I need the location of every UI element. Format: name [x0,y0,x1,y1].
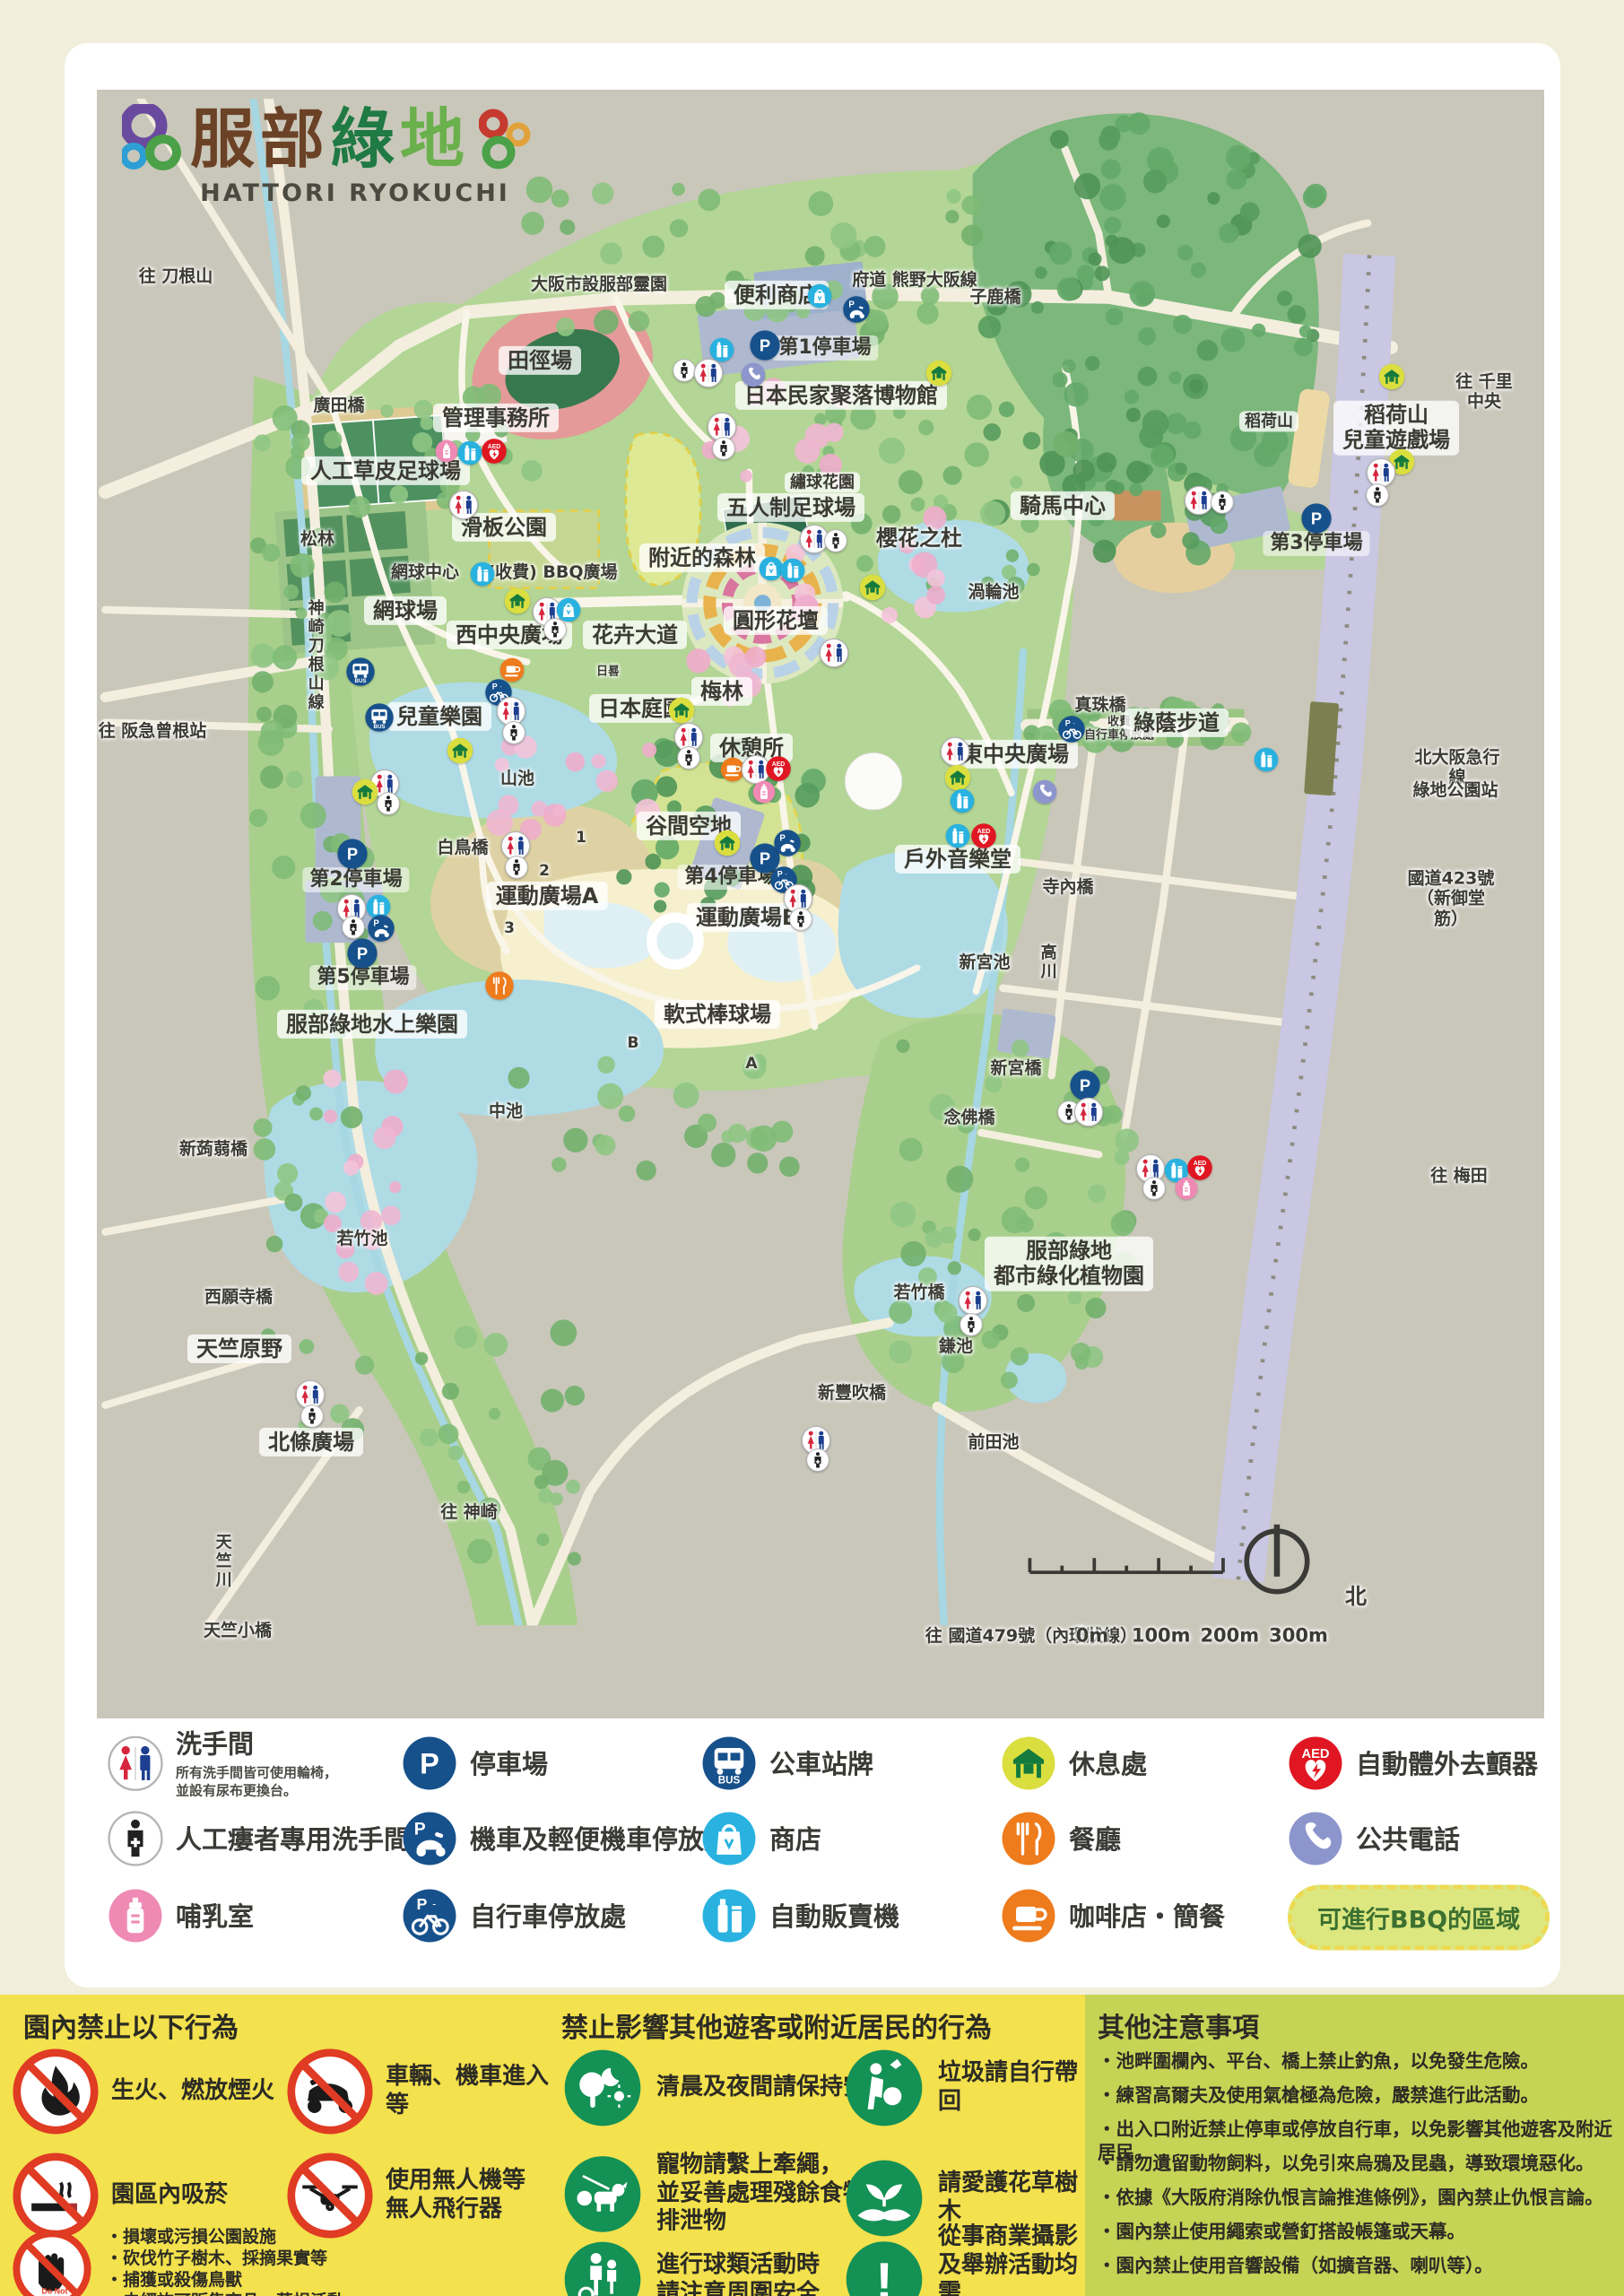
legend-note: 所有洗手間皆可使用輪椅， 並設有尿布更換台。 [176,1763,391,1800]
etiquette-item-quiet: 清晨及夜間請保持安靜 [561,2047,890,2129]
svg-text:P: P [420,1748,439,1780]
legend-item-restaurant: 餐廳 [1001,1811,1121,1870]
other-notice-bullet: ・園內禁止使用繩索或營釘搭設帳篷或天幕。 [1098,2221,1616,2244]
svg-text:P: P [414,1819,426,1839]
legend-item-cafe: 咖啡店・簡餐 [1001,1888,1225,1947]
aed-icon: AED [1288,1735,1343,1795]
other-notice-bullet: ・池畔圍欄內、平台、橋上禁止釣魚，以免發生危險。 [1098,2050,1616,2074]
legend-label: 休息處 [1069,1751,1147,1779]
accessible-icon [502,721,525,744]
other-notice-bullet: ・練習高爾夫及使用氣槍極為危險，嚴禁進行此活動。 [1098,2084,1616,2108]
map-card: 往 刀根山大阪市設服部靈園府道 熊野大阪線子鹿橋便利商店第1停車場日本民家聚落博… [65,43,1560,1987]
legend-item-bbq: 可進行BBQ的區域 [1288,1885,1550,1951]
accessible-icon [960,1313,983,1336]
prohibited-item-no-fire: 生火、燃放煙火 [13,2048,274,2135]
rest-icon [714,830,741,857]
notice-column-other: 其他注意事項 ・池畔圍欄內、平台、橋上禁止釣魚，以免發生危險。・練習高爾夫及使用… [1085,1995,1624,2296]
no-fire-icon [13,2048,99,2135]
legend-item-shop: 商店 [701,1811,821,1870]
do-not-hand-icon: Do Not [13,2230,91,2296]
legend-label: 自動販賣機 [769,1903,899,1932]
svg-text:P: P [357,944,368,963]
prohibited-label: 使用無人機等 無人飛行器 [386,2167,525,2223]
toilet-icon [1185,486,1214,516]
toilet-icon [1074,1098,1104,1127]
accessible-icon [673,359,696,382]
legend-label: 洗手間 [176,1730,391,1759]
svg-text:P: P [760,336,770,355]
svg-text:P: P [1065,719,1071,728]
prohibited-item-no-vehicle: 車輛、機車進入等 [287,2048,554,2135]
ball-icon [561,2239,644,2296]
bbq-area-badge: 可進行BBQ的區域 [1288,1885,1550,1951]
nursing-icon [752,780,776,804]
shop-icon [701,1811,757,1870]
legend-label: 公共電話 [1356,1826,1460,1855]
etiquette-item-pet: 寵物請繫上牽繩， 並妥善處理殘餘食物、 排泄物 [561,2151,890,2236]
nursing-icon [1175,1177,1198,1200]
pet-icon [561,2152,644,2235]
rest-icon [352,778,378,805]
etiquette-item-ball: 進行球類活動時 請注意周圍安全 [561,2239,820,2296]
legend-label: 哺乳室 [176,1903,254,1932]
phone-icon [741,362,766,387]
accessible-icon [505,856,528,879]
svg-text:P: P [492,683,498,691]
legend-item-motoP: P機車及輕便機車停放處 [402,1811,730,1870]
aed-icon: AED [482,439,508,465]
legend-item-aed: AED自動體外去顫器 [1288,1735,1538,1795]
etiquette-label: 從事商業攝影 及舉辦活動均需 獲得許可 [938,2223,1085,2296]
bikeP-icon: P- [1058,716,1086,744]
svg-text:P: P [760,849,770,868]
svg-text:AED: AED [488,444,501,450]
svg-text:AED: AED [977,829,991,835]
no-vehicle-icon [287,2048,373,2135]
legend-label: 商店 [769,1826,821,1855]
P-icon: P [1070,1070,1101,1101]
prohibited-hand-item: ・損壞或污損公園設施 [106,2226,542,2248]
legend-item-toilet: 洗手間所有洗手間皆可使用輪椅， 並設有尿布更換台。 [108,1730,391,1799]
prohibited-label: 園區內吸菸 [111,2181,228,2210]
logo-dots-left-icon [122,104,181,174]
svg-text:P: P [417,1895,428,1913]
toilet-icon [449,491,479,520]
notice-column-consideration: 禁止影響其他遊客或附近居民的行為 清晨及夜間請保持安靜垃圾請自行帶回寵物請繫上牽… [554,1995,1085,2296]
park-title-block: 服部綠地 HATTORI RYOKUCHI [122,104,588,207]
svg-text:AED: AED [1301,1747,1329,1761]
etiquette-label: 請愛護花草樹木 [938,2170,1085,2226]
svg-text:P: P [1311,509,1322,528]
toilet-icon [694,359,724,388]
bus-icon: BUS [701,1735,757,1795]
rest-icon [1378,363,1405,390]
etiquette-label: 垃圾請自行帶回 [938,2059,1085,2116]
rest-icon [859,574,886,601]
accessible-icon [377,792,400,815]
other-notice-bullet: ・依據《大阪府消除仇恨言論推進條例》，園內禁止仇恨言論。 [1098,2187,1616,2210]
P-icon: P [402,1735,457,1795]
park-title: 服部綠地 [190,107,470,171]
prohibited-hand-item: ・未經許可販售商品、募捐活動 [106,2291,542,2296]
bikeP-icon: P- [402,1888,457,1947]
nursing-icon [435,439,458,463]
prohibited-label: 生火、燃放煙火 [111,2077,274,2106]
accessible-icon [1366,483,1389,507]
motoP-icon: P [402,1811,457,1870]
map-icons-layer: PPAEDPP-AEDBUSBUSPPPAEDP-PPP-PAED [97,90,1544,1718]
P-icon: P [337,839,369,870]
other-notice-bullet: ・園內禁止使用音響設備（如擴音器、喇叭等）。 [1098,2255,1616,2278]
accessible-icon [300,1405,324,1428]
rest-icon [944,764,971,791]
toilet-icon [820,639,849,668]
vending-icon [457,440,482,465]
legend-item-P: P停車場 [402,1735,548,1795]
bus-icon: BUS [365,703,395,733]
legend-label: 公車站牌 [769,1751,873,1779]
svg-text:Do Not: Do Not [42,2286,68,2295]
restaurant-icon [485,971,515,1001]
park-title-en: HATTORI RYOKUCHI [122,179,588,207]
svg-text:BUS: BUS [373,724,385,730]
accessible-icon [824,529,847,552]
notice-title: 園內禁止以下行為 [23,2005,239,2045]
svg-text:-: - [432,1898,436,1910]
legend-label: 自動體外去顫器 [1356,1751,1538,1779]
prohibited-hand-item: ・捕獲或殺傷鳥獸 [106,2269,542,2291]
nursing-icon [108,1888,163,1947]
rest-icon [668,697,695,724]
legend-item-bikeP: P-自行車停放處 [402,1888,626,1947]
P-icon: P [1301,503,1333,535]
legend-label: 停車場 [470,1751,548,1779]
legend-label: 餐廳 [1069,1826,1121,1855]
accessible-icon [806,1448,829,1472]
motoP-icon: P [774,830,802,857]
trash-icon [843,2047,925,2129]
svg-text:-: - [786,871,787,877]
logo-dots-right-icon [479,108,533,170]
restaurant-icon [1001,1811,1056,1870]
notice-column-prohibited: 園內禁止以下行為 生火、燃放煙火車輛、機車進入等園區內吸菸使用無人機等 無人飛行… [0,1995,554,2296]
rest-icon [504,587,531,614]
legend-item-phone: 公共電話 [1288,1811,1460,1870]
svg-text:BUS: BUS [718,1774,741,1786]
svg-text:AED: AED [1194,1161,1207,1167]
prohibited-hand-item: ・砍伐竹子樹木、採摘果實等 [106,2248,542,2269]
accessible-icon [342,916,365,939]
prohibited-hand-list: ・損壞或污損公園設施・砍伐竹子樹木、採摘果實等・捕獲或殺傷鳥獸・未經許可販售商品… [106,2226,542,2296]
svg-text:P: P [777,870,783,879]
svg-text:BUS: BUS [354,678,366,684]
accessible-icon [108,1811,163,1870]
cafe-icon [1001,1888,1056,1947]
park-map: 往 刀根山大阪市設服部靈園府道 熊野大阪線子鹿橋便利商店第1停車場日本民家聚落博… [97,90,1544,1718]
phone-icon [1032,779,1057,804]
rest-icon [447,737,473,764]
accessible-icon [543,618,567,641]
accessible-icon [1142,1177,1166,1200]
vending-icon [950,788,975,813]
rest-icon [1001,1735,1056,1795]
svg-text:-: - [500,683,502,690]
notice-title: 其他注意事項 [1098,2005,1259,2045]
phone-icon [1288,1811,1343,1870]
notice-title: 禁止影響其他遊客或附近居民的行為 [561,2005,992,2045]
svg-text:P: P [1080,1076,1090,1095]
bus-icon: BUS [346,657,376,687]
aed-icon: AED [766,756,792,782]
rest-icon [925,360,952,387]
aed-icon: AED [971,823,997,849]
legend-item-bus: BUS公車站牌 [701,1735,873,1795]
svg-text:P: P [347,845,358,864]
prohibited-item-do-not-hand: Do Not [13,2230,91,2296]
P-icon: P [750,330,781,361]
legend-label: 自行車停放處 [470,1903,626,1932]
shop-icon [807,283,832,309]
vending-icon [470,561,495,587]
legend-label: 人工瘻者專用洗手間 [176,1826,410,1855]
legend-item-vending: 自動販賣機 [701,1888,899,1947]
permit-icon: ! [843,2239,925,2296]
svg-text:P: P [779,834,786,844]
legend-item-nursing: 哺乳室 [108,1888,254,1947]
vending-icon [780,558,805,583]
P-icon: P [347,938,378,970]
notices: 園內禁止以下行為 生火、燃放煙火車輛、機車進入等園區內吸菸使用無人機等 無人飛行… [0,1995,1624,2296]
motoP-icon: P [843,296,871,324]
legend-item-rest: 休息處 [1001,1735,1147,1795]
etiquette-item-trash: 垃圾請自行帶回 [843,2047,1085,2129]
svg-text:AED: AED [772,761,786,768]
legend-label: 機車及輕便機車停放處 [470,1826,730,1855]
svg-text:-: - [1073,720,1075,726]
etiquette-item-permit: !從事商業攝影 及舉辦活動均需 獲得許可 [843,2223,1085,2296]
legend-label: 咖啡店・簡餐 [1069,1903,1225,1932]
vending-icon [1254,747,1279,772]
no-smoking-icon [13,2152,99,2239]
svg-text:P: P [848,300,855,310]
toilet-icon [941,737,970,767]
toilet-icon [959,1286,988,1316]
svg-text:!: ! [875,2253,893,2296]
accessible-icon [677,746,700,770]
accessible-icon [1211,491,1234,514]
prohibited-label: 車輛、機車進入等 [386,2063,554,2119]
legend-item-accessible: 人工瘻者專用洗手間 [108,1811,410,1870]
vending-icon [945,823,970,848]
toilet-icon [108,1735,163,1795]
accessible-icon [712,437,735,460]
other-notice-bullet: ・請勿遺留動物飼料，以免引來烏鴉及昆蟲，導致環境惡化。 [1098,2152,1616,2176]
accessible-icon [789,908,812,931]
vending-icon [701,1888,757,1947]
etiquette-label: 進行球類活動時 請注意周圍安全 [656,2251,820,2296]
svg-text:P: P [373,919,379,929]
quiet-icon [561,2047,644,2129]
